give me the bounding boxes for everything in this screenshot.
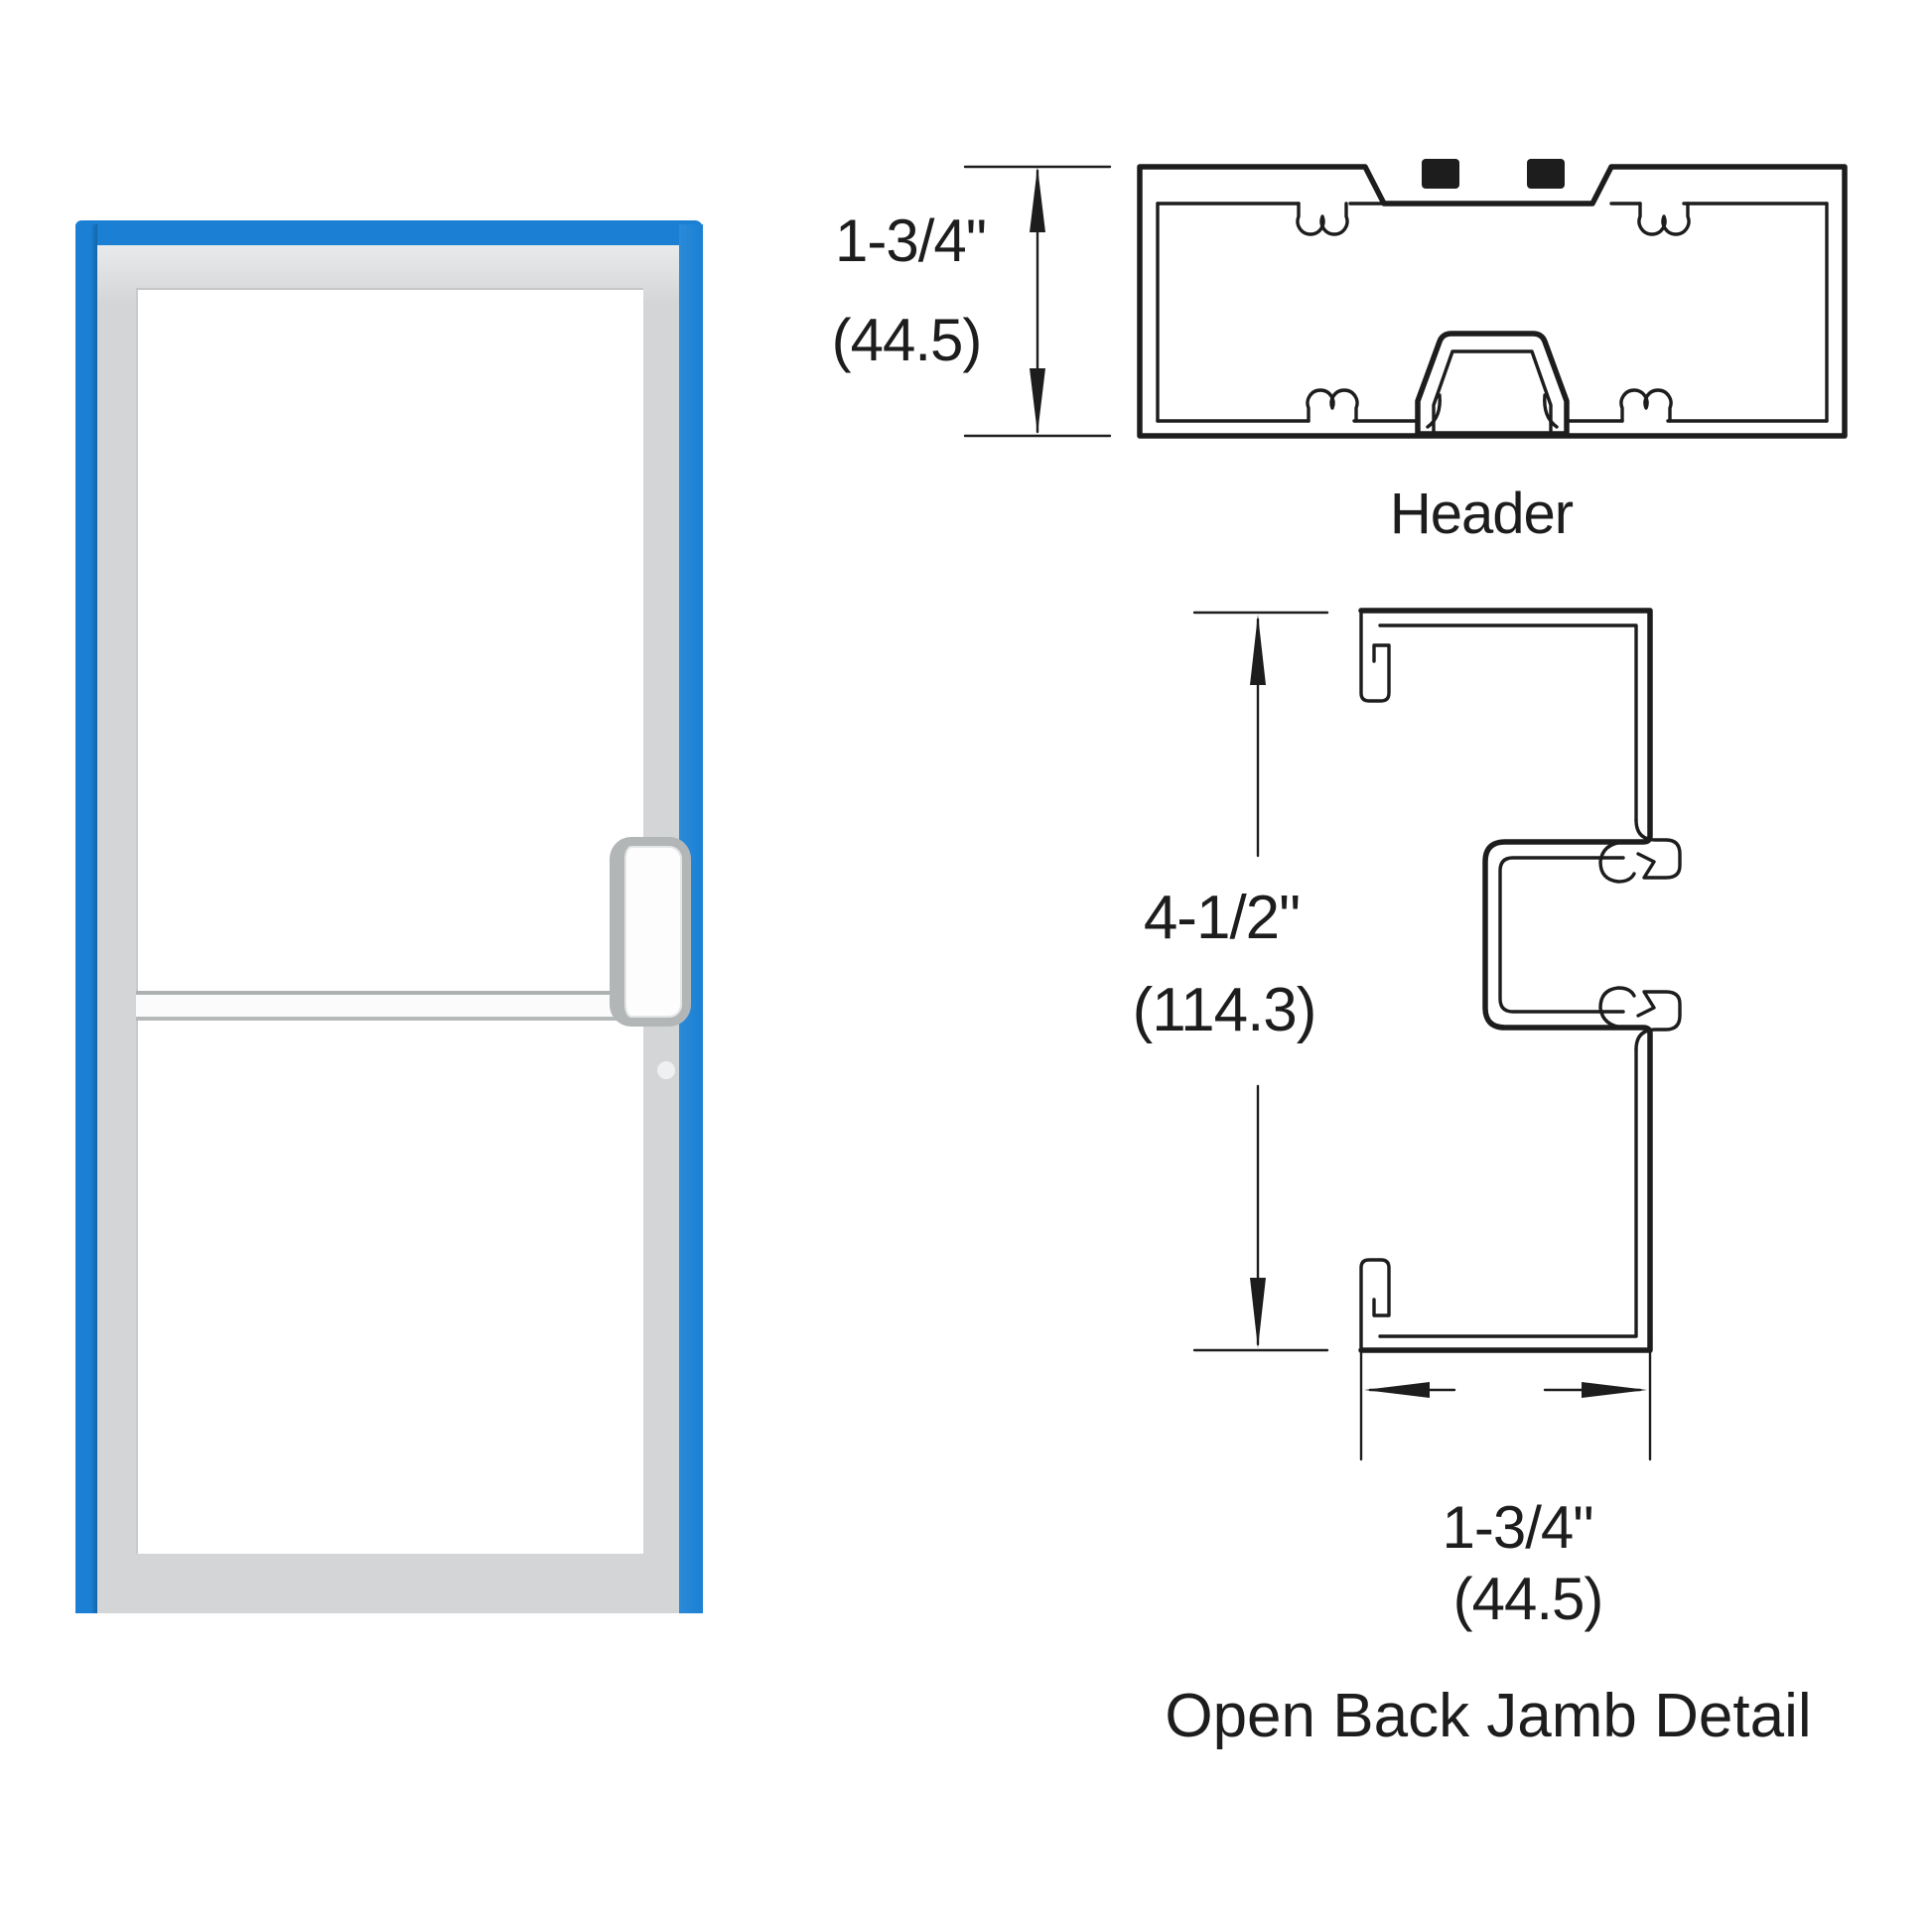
- spec-sheet-page: 1-3/4" (44.5) Header 4-1/2" (114.3) 1-3/…: [0, 0, 1932, 1932]
- header-profile-drawing: [1140, 159, 1845, 436]
- jamb-height-dimension-metric: (114.3): [1100, 979, 1348, 1042]
- jamb-height-dimension-imperial: 4-1/2": [1100, 887, 1343, 950]
- header-height-dimension-metric: (44.5): [782, 310, 1031, 371]
- jamb-detail-caption: Open Back Jamb Detail: [1115, 1685, 1862, 1748]
- jamb-width-dimension-metric: (44.5): [1404, 1569, 1652, 1630]
- jamb-width-dimension-imperial: 1-3/4": [1396, 1497, 1639, 1559]
- header-height-dimension-imperial: 1-3/4": [786, 210, 1035, 272]
- header-profile-title: Header: [1342, 484, 1620, 544]
- jamb-profile-drawing: [1361, 611, 1680, 1350]
- cross-section-drawings: [0, 0, 1932, 1932]
